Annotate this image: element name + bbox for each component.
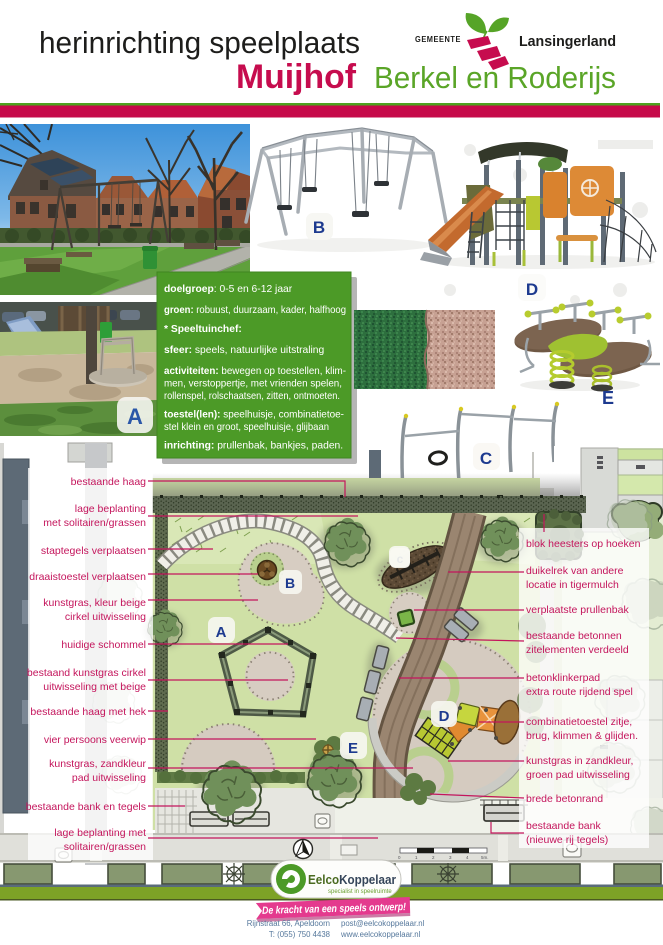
- svg-text:Lansingerland: Lansingerland: [519, 33, 616, 50]
- svg-text:E: E: [602, 388, 614, 408]
- svg-text:kunstgras, zandkleur: kunstgras, zandkleur: [49, 758, 146, 770]
- svg-text:brug, klimmen & glijden.: brug, klimmen & glijden.: [526, 730, 638, 742]
- svg-text:inrichting: prullenbak, bankje: inrichting: prullenbak, bankjes, paden.: [164, 441, 343, 452]
- svg-text:www.eelcokoppelaar.nl: www.eelcokoppelaar.nl: [340, 930, 421, 939]
- svg-text:A: A: [216, 624, 227, 641]
- svg-text:bestaande betonnen: bestaande betonnen: [526, 630, 622, 642]
- svg-text:bestaande haag: bestaande haag: [71, 476, 146, 488]
- svg-text:kunstgras, kleur beige: kunstgras, kleur beige: [43, 597, 146, 609]
- svg-text:herinrichting speelplaats: herinrichting speelplaats: [39, 25, 360, 60]
- svg-text:duikelrek van andere: duikelrek van andere: [526, 565, 624, 577]
- svg-text:brede betonrand: brede betonrand: [526, 793, 603, 805]
- svg-text:D: D: [526, 280, 538, 299]
- svg-text:zitelementen verdeeld: zitelementen verdeeld: [526, 644, 629, 656]
- svg-text:lage beplanting met: lage beplanting met: [54, 827, 146, 839]
- svg-text:blok heesters op hoeken: blok heesters op hoeken: [526, 538, 641, 550]
- svg-text:rollenspel, rolschaatsen, zitt: rollenspel, rolschaatsen, zitten, ontmoe…: [164, 391, 340, 402]
- svg-text:bestaand kunstgras cirkel: bestaand kunstgras cirkel: [27, 667, 146, 679]
- svg-text:GEMEENTE: GEMEENTE: [415, 35, 461, 44]
- svg-text:cirkel uitwisseling: cirkel uitwisseling: [65, 611, 146, 623]
- svg-text:bestaande haag met hek: bestaande haag met hek: [30, 706, 146, 718]
- svg-text:sfeer: speels, natuurlijke uit: sfeer: speels, natuurlijke uitstraling: [164, 345, 325, 356]
- svg-text:verplaatste prullenbak: verplaatste prullenbak: [526, 604, 629, 616]
- svg-text:toestel(len): speelhuisje, com: toestel(len): speelhuisje, combinatietoe…: [164, 410, 344, 421]
- svg-text:combinatietoestel zitje,: combinatietoestel zitje,: [526, 716, 632, 728]
- svg-text:lage beplanting: lage beplanting: [75, 503, 146, 515]
- svg-text:huidige schommel: huidige schommel: [61, 639, 146, 651]
- svg-text:vier persoons veerwip: vier persoons veerwip: [44, 734, 146, 746]
- svg-text:C: C: [480, 449, 492, 468]
- svg-text:Rijnstraat 66, Apeldoorn: Rijnstraat 66, Apeldoorn: [247, 919, 330, 928]
- svg-text:activiteiten: bewegen op toest: activiteiten: bewegen op toestellen, kli…: [164, 366, 346, 377]
- svg-text:betonklinkerpad: betonklinkerpad: [526, 672, 600, 684]
- svg-text:groen: robuust, duurzaam, kade: groen: robuust, duurzaam, kader, halfhoo…: [164, 305, 346, 316]
- svg-text:D: D: [439, 708, 450, 725]
- svg-text:doelgroep: 0-5 en 6-12 jaar: doelgroep: 0-5 en 6-12 jaar: [164, 284, 293, 295]
- svg-text:E: E: [348, 740, 358, 757]
- svg-text:stel klein en groot, speelhuis: stel klein en groot, speelhuisje, glijba…: [164, 422, 329, 433]
- svg-text:specialist in speelruimte: specialist in speelruimte: [328, 889, 392, 895]
- svg-text:groen pad uitwisseling: groen pad uitwisseling: [526, 769, 630, 781]
- svg-text:extra route rijdend spel: extra route rijdend spel: [526, 686, 633, 698]
- svg-text:B: B: [313, 218, 325, 237]
- svg-text:bestaande bank en tegels: bestaande bank en tegels: [26, 801, 146, 813]
- svg-text:5m.: 5m.: [481, 855, 489, 860]
- svg-text:staptegels verplaatsen: staptegels verplaatsen: [41, 545, 146, 557]
- svg-text:men, verstoppertje, met vriend: men, verstoppertje, met vrienden spelen,: [164, 379, 342, 390]
- svg-text:kunstgras in zandkleur,: kunstgras in zandkleur,: [526, 755, 633, 767]
- svg-text:met solitairen/grassen: met solitairen/grassen: [43, 517, 146, 529]
- svg-text:* Speeltuinchef:: * Speeltuinchef:: [164, 324, 242, 335]
- svg-text:A: A: [127, 404, 143, 429]
- svg-text:post@eelcokoppelaar.nl: post@eelcokoppelaar.nl: [341, 919, 425, 928]
- svg-text:solitairen/grassen: solitairen/grassen: [64, 841, 146, 853]
- svg-text:uitwisseling met beige: uitwisseling met beige: [43, 681, 146, 693]
- svg-text:Muijhof: Muijhof: [236, 58, 357, 96]
- svg-text:T: (055) 750 4438: T: (055) 750 4438: [269, 930, 330, 939]
- svg-text:draaistoestel verplaatsen: draaistoestel verplaatsen: [29, 571, 146, 583]
- svg-text:locatie in tigermulch: locatie in tigermulch: [526, 579, 619, 591]
- svg-text:B: B: [285, 575, 295, 591]
- svg-text:pad uitwisseling: pad uitwisseling: [72, 772, 146, 784]
- svg-text:bestaande bank: bestaande bank: [526, 820, 601, 832]
- svg-text:EelcoKoppelaar: EelcoKoppelaar: [308, 872, 396, 887]
- svg-text:(nieuwe rij tegels): (nieuwe rij tegels): [526, 834, 608, 846]
